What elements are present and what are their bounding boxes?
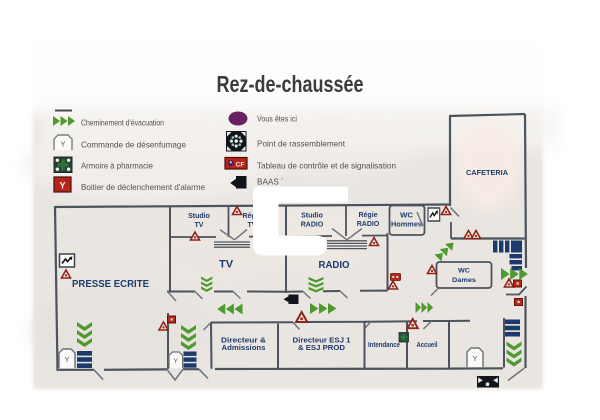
svg-text:TV: TV bbox=[195, 222, 204, 229]
svg-text:RADIO: RADIO bbox=[301, 222, 324, 229]
svg-text:Commande de désenfumage: Commande de désenfumage bbox=[81, 141, 186, 150]
svg-text:Dames: Dames bbox=[452, 277, 476, 284]
svg-text:Hommes: Hommes bbox=[391, 222, 422, 229]
svg-text:BAAS ´: BAAS ´ bbox=[257, 178, 284, 187]
svg-text:Accueil: Accueil bbox=[417, 342, 438, 349]
svg-text:Y: Y bbox=[60, 140, 65, 149]
svg-text:Directeur ESJ 1: Directeur ESJ 1 bbox=[293, 338, 351, 345]
svg-text:Studio: Studio bbox=[301, 213, 323, 220]
svg-text:RADIO: RADIO bbox=[319, 259, 350, 271]
svg-text:Rez-de-chaussée: Rez-de-chaussée bbox=[217, 71, 364, 97]
svg-text:TV: TV bbox=[219, 259, 234, 271]
svg-text:RADIO: RADIO bbox=[357, 221, 380, 228]
svg-text:WC: WC bbox=[458, 268, 470, 275]
svg-text:WC: WC bbox=[400, 213, 413, 220]
svg-text:Studio: Studio bbox=[188, 213, 210, 220]
svg-text:CF: CF bbox=[236, 162, 245, 169]
svg-text:& ESJ PROD: & ESJ PROD bbox=[298, 345, 345, 352]
svg-text:Vous êtes ici: Vous êtes ici bbox=[257, 115, 297, 124]
svg-text:Intendance: Intendance bbox=[368, 342, 400, 349]
svg-text:Tableau de contrôle et de sign: Tableau de contrôle et de signalisation bbox=[257, 162, 396, 171]
svg-text:Y: Y bbox=[59, 181, 65, 191]
svg-text:PRESSE ECRITE: PRESSE ECRITE bbox=[72, 279, 149, 290]
svg-text:Armoire à pharmacie: Armoire à pharmacie bbox=[81, 162, 153, 171]
svg-text:CAFETERIA: CAFETERIA bbox=[466, 168, 509, 177]
svg-text:Régie: Régie bbox=[358, 212, 377, 219]
svg-text:Boitier de déclenchement d'ala: Boitier de déclenchement d'alarme bbox=[81, 183, 205, 192]
svg-text:Cheminement d'évacuation: Cheminement d'évacuation bbox=[81, 119, 164, 128]
svg-text:Directeur &: Directeur & bbox=[221, 338, 266, 345]
svg-text:Point de rassemblement: Point de rassemblement bbox=[257, 140, 346, 149]
svg-text:Admissions: Admissions bbox=[222, 345, 266, 352]
